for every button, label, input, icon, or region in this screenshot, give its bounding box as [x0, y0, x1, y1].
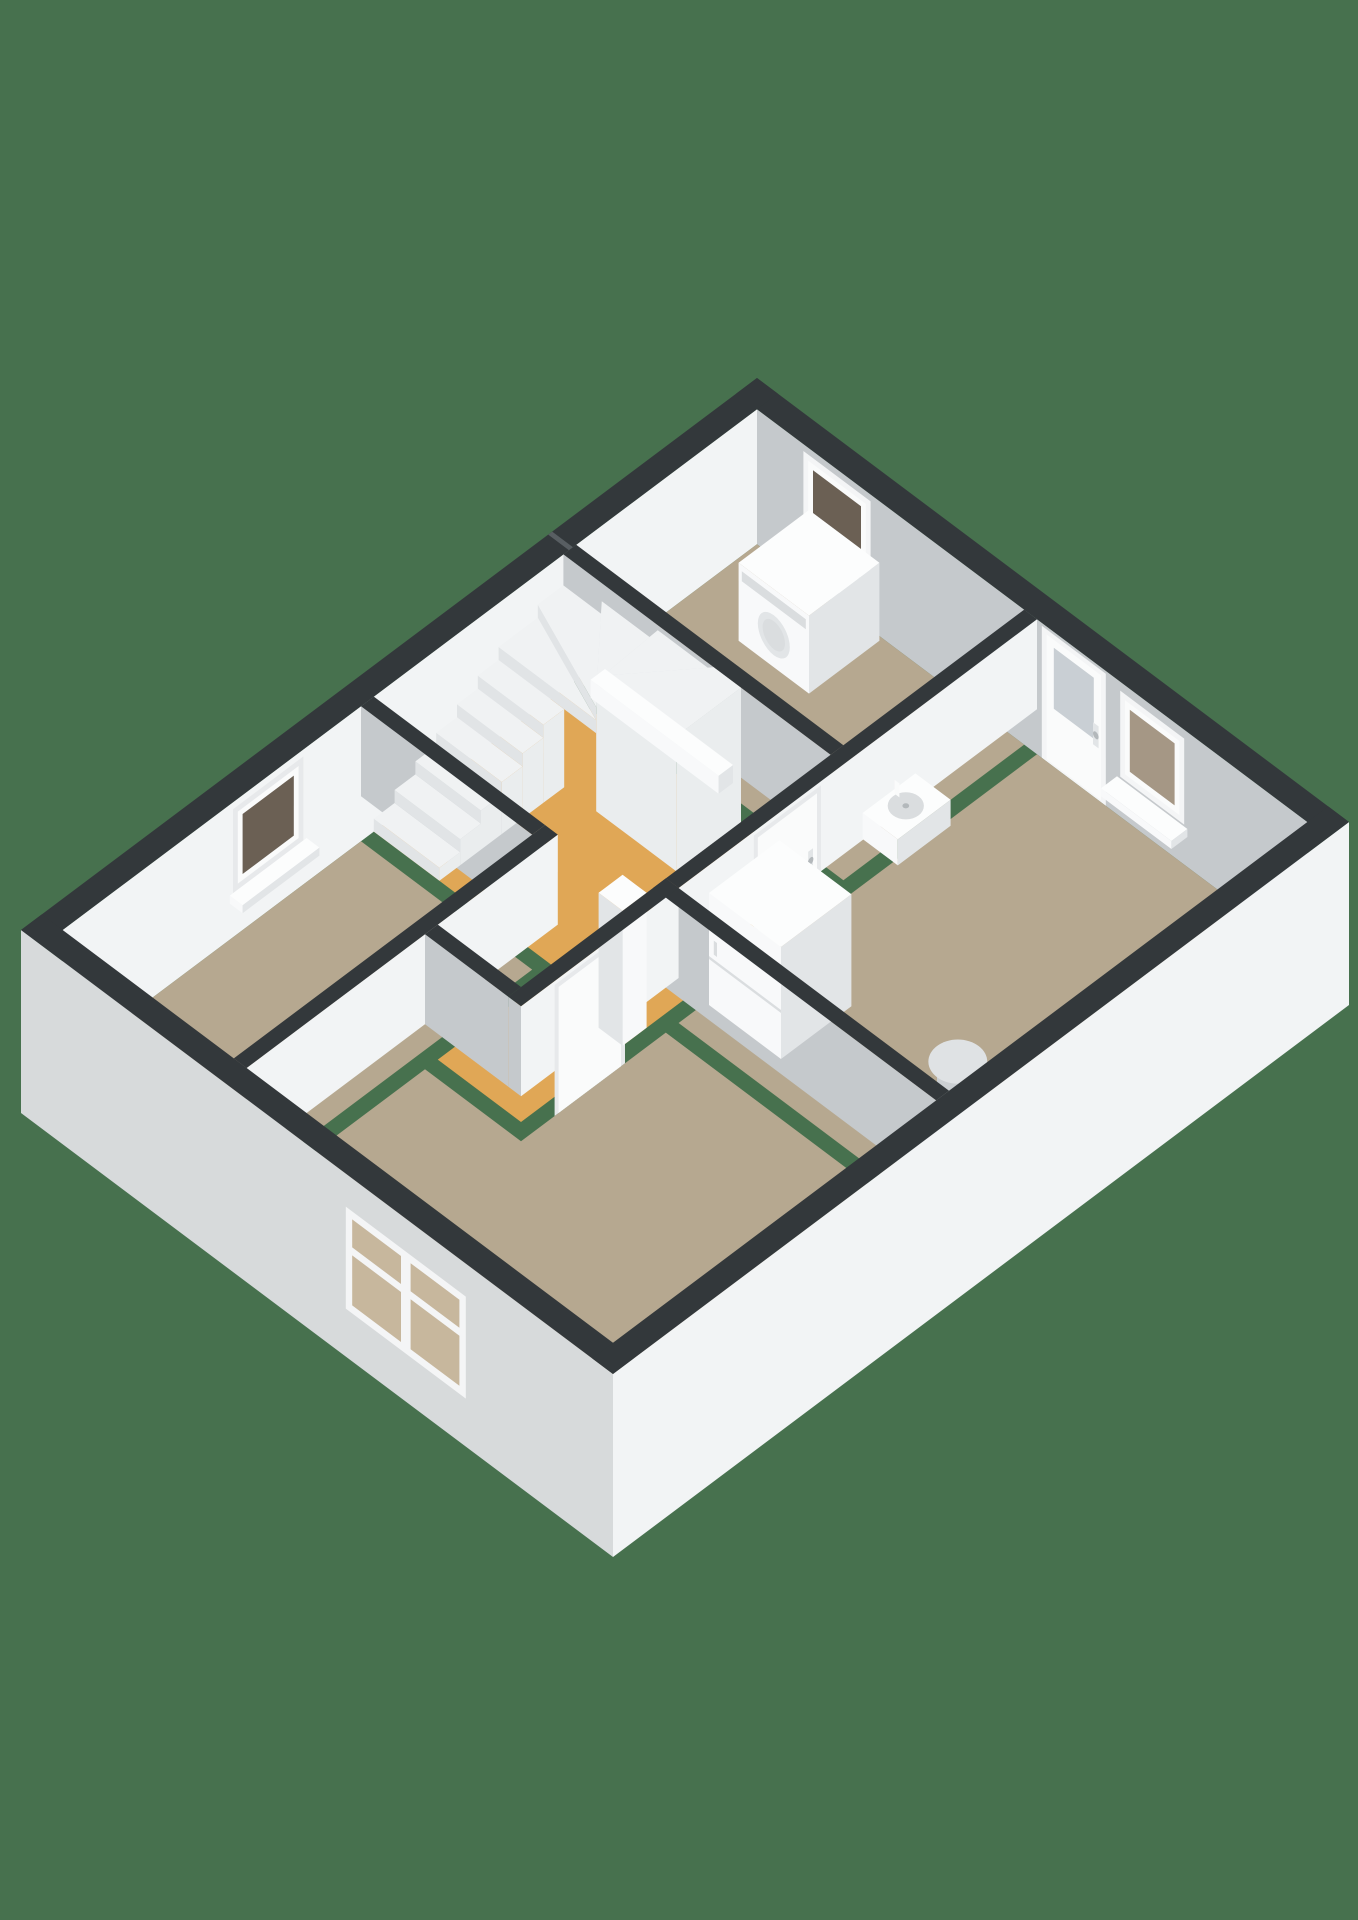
tall-cabinet-handle: [714, 941, 717, 957]
wall-hall-bottomroom-endcap: [508, 997, 521, 1097]
stair-step6-side: [543, 709, 564, 803]
floorplan-stage: [0, 0, 1358, 1920]
floorplan: [0, 0, 1358, 1920]
